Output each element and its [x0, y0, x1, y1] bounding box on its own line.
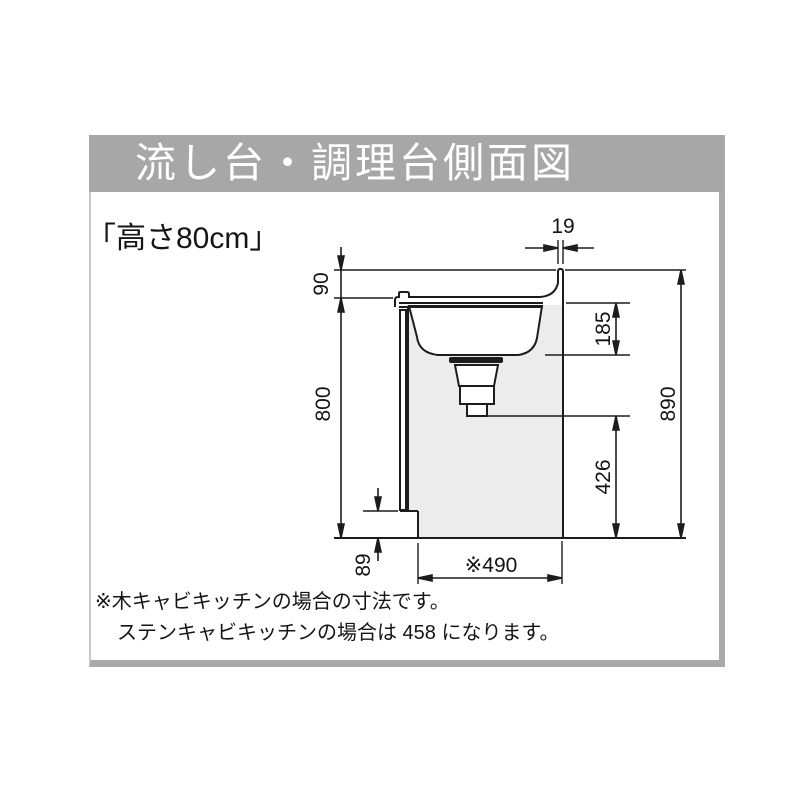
page-title: 流し台・調理台側面図 [89, 143, 575, 184]
title-bar: 流し台・調理台側面図 [89, 135, 723, 192]
footnotes: ※木キャビキッチンの場合の寸法です。 ステンキャビキッチンの場合は 458 にな… [95, 587, 559, 649]
diagram-panel: 流し台・調理台側面図 「高さ80cm」 ※木キャビキッチンの場合の寸法です。 ス… [89, 135, 725, 667]
height-label: 「高さ80cm」 [86, 213, 279, 257]
footnote-line1: ※木キャビキッチンの場合の寸法です。 [95, 587, 559, 618]
page: 流し台・調理台側面図 「高さ80cm」 ※木キャビキッチンの場合の寸法です。 ス… [0, 0, 800, 800]
footnote-line2: ステンキャビキッチンの場合は 458 になります。 [95, 618, 559, 649]
